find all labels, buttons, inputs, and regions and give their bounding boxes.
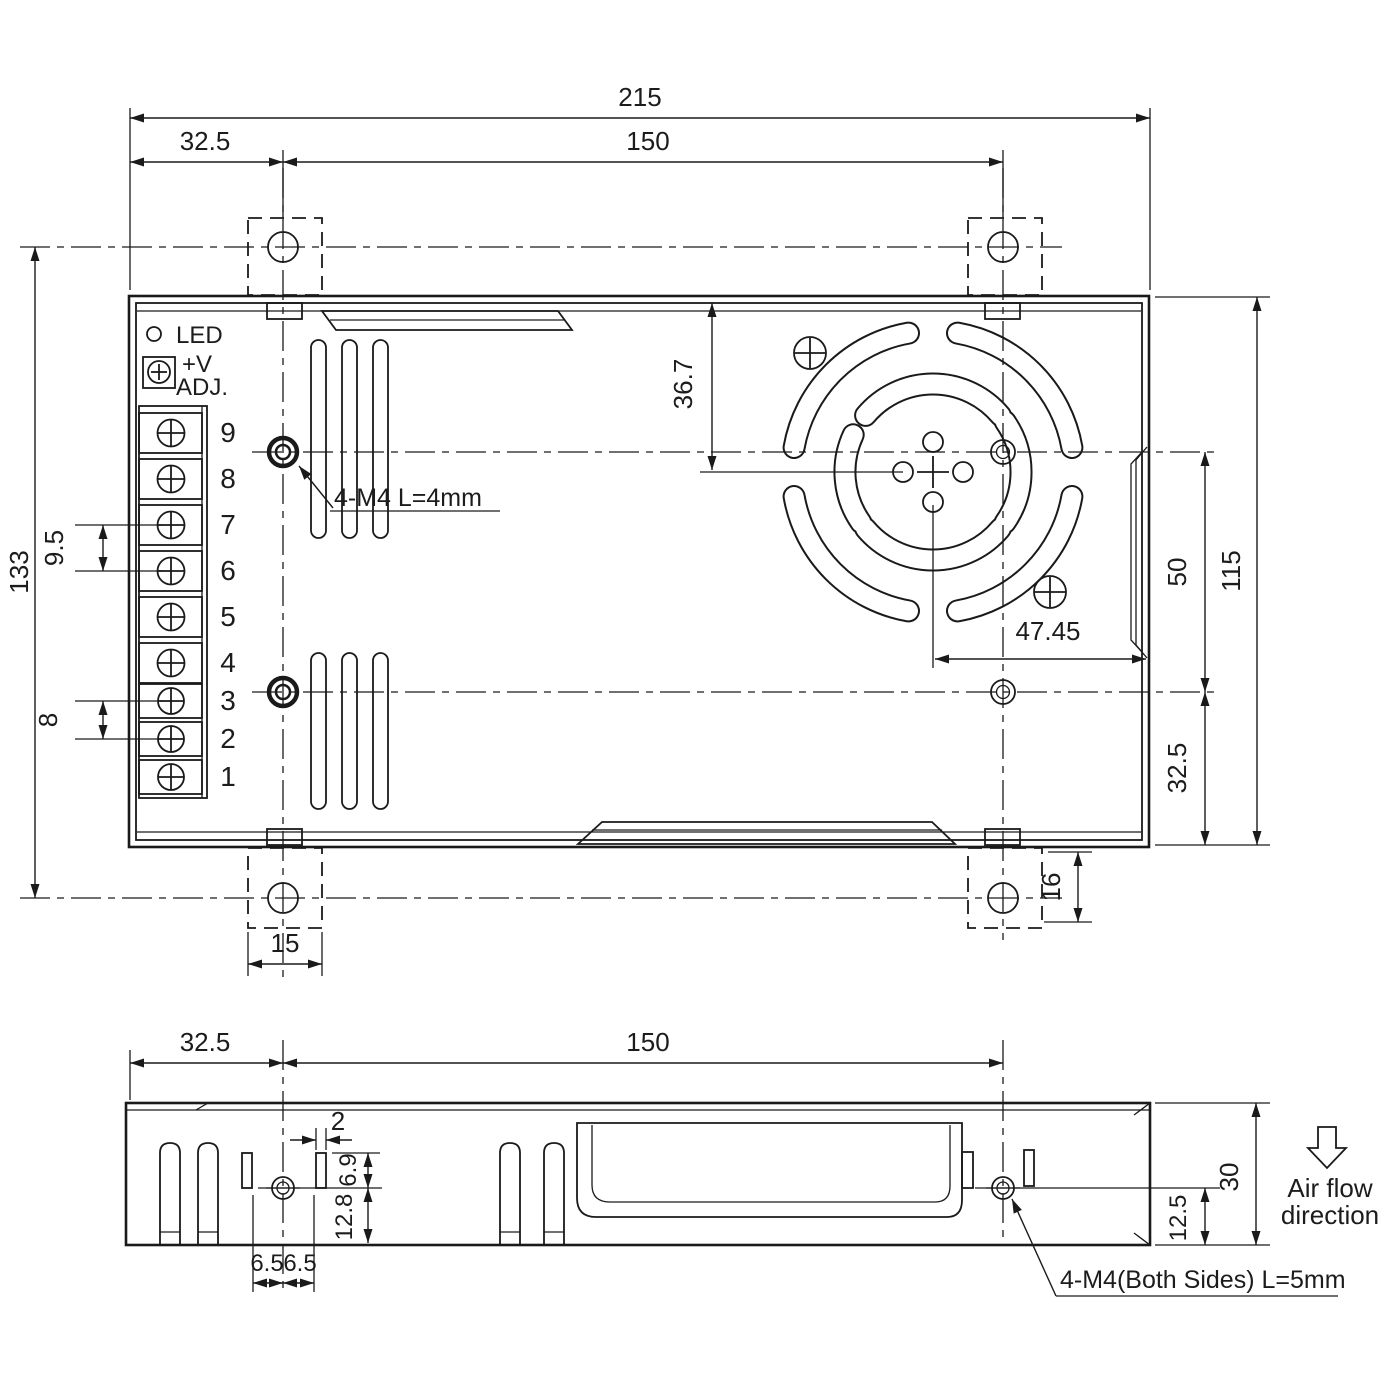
side-mount-note-label: 4-M4(Both Sides) L=5mm (1060, 1266, 1346, 1294)
vent-slots-top-view (311, 340, 388, 809)
dim-hole-offset-left: 6.5 (250, 1250, 283, 1277)
dim-mount-offset: 32.5 (180, 126, 231, 156)
dim-tab-width: 15 (271, 928, 300, 958)
dim-side-height: 30 (1214, 1163, 1244, 1192)
dim-slot-width: 2 (331, 1106, 345, 1136)
dim-total-height: 133 (4, 550, 34, 593)
dim-fan-center-from-top: 36.7 (668, 359, 698, 410)
side-outline (126, 1103, 1150, 1245)
terminal-number: 6 (220, 555, 236, 586)
cover-screw (794, 337, 826, 369)
terminal-number: 9 (220, 417, 236, 448)
side-view: 32.5 150 2 6.9 12.8 6.5 6.5 (126, 1027, 1379, 1296)
terminal-number: 5 (220, 601, 236, 632)
dim-hole-offset-right: 6.5 (283, 1250, 316, 1277)
terminal-number: 2 (220, 723, 236, 754)
top-view: LED +V ADJ. (4, 82, 1270, 978)
terminal-number: 8 (220, 463, 236, 494)
dim-case-width: 115 (1216, 550, 1246, 591)
mount-note-label: 4-M4 L=4mm (334, 484, 482, 512)
air-flow-arrow-icon (1308, 1127, 1346, 1168)
terminal-number: 3 (220, 685, 236, 716)
dim-total-width: 215 (618, 82, 661, 112)
dim-fan-center-to-edge: 47.45 (1015, 616, 1080, 646)
side-cover-recess (577, 1123, 973, 1217)
dim-center-to-bottom: 12.8 (331, 1194, 358, 1241)
dim-mount-span: 150 (626, 126, 669, 156)
led-label: LED (176, 322, 223, 349)
side-louvers (160, 1143, 564, 1245)
dim-hole-span: 50 (1162, 558, 1192, 587)
mechanical-drawing-page: LED +V ADJ. (0, 0, 1400, 1400)
dim-tab-length: 16 (1036, 873, 1066, 902)
side-center-lines (258, 1040, 1220, 1292)
m4-insert (269, 438, 1015, 706)
cover-screw (1034, 576, 1066, 608)
dim-terminal-pitch-large: 9.5 (39, 530, 69, 566)
voltage-adjust-pot (143, 357, 175, 388)
terminal-screws (158, 420, 185, 791)
terminal-number: 7 (220, 509, 236, 540)
fan-hub (893, 432, 973, 512)
dim-hole-to-bottom: 32.5 (1162, 743, 1192, 794)
dim-side-mount-span: 150 (626, 1027, 669, 1057)
air-flow-label-line2: direction (1281, 1200, 1379, 1230)
terminal-number: 4 (220, 647, 236, 678)
cover-crease-right (1131, 447, 1147, 658)
terminal-numbers: 9 8 7 6 5 4 3 2 1 (220, 417, 236, 792)
mount-screw-callout: 4-M4 L=4mm (299, 466, 500, 512)
cover-seam-top (322, 311, 572, 330)
indicator-area: LED +V ADJ. (143, 322, 228, 401)
side-view-dimensions: 32.5 150 2 6.9 12.8 6.5 6.5 (130, 1027, 1346, 1296)
enclosure-outline (129, 296, 1149, 847)
air-flow-label-line1: Air flow (1287, 1173, 1372, 1203)
dimension-drawing: LED +V ADJ. (0, 0, 1400, 1400)
dim-slot-to-center: 6.9 (335, 1153, 362, 1186)
dim-terminal-pitch-small: 8 (33, 713, 63, 727)
dim-side-hole-to-bottom: 12.5 (1165, 1195, 1192, 1242)
vadj-label-line2: ADJ. (176, 374, 228, 401)
terminal-number: 1 (220, 761, 236, 792)
dim-side-mount-offset: 32.5 (180, 1027, 231, 1057)
air-flow-annotation: Air flow direction (1281, 1127, 1379, 1230)
led-indicator (147, 327, 161, 341)
top-view-dimensions: 215 32.5 150 133 9.5 8 36.7 (4, 82, 1270, 976)
